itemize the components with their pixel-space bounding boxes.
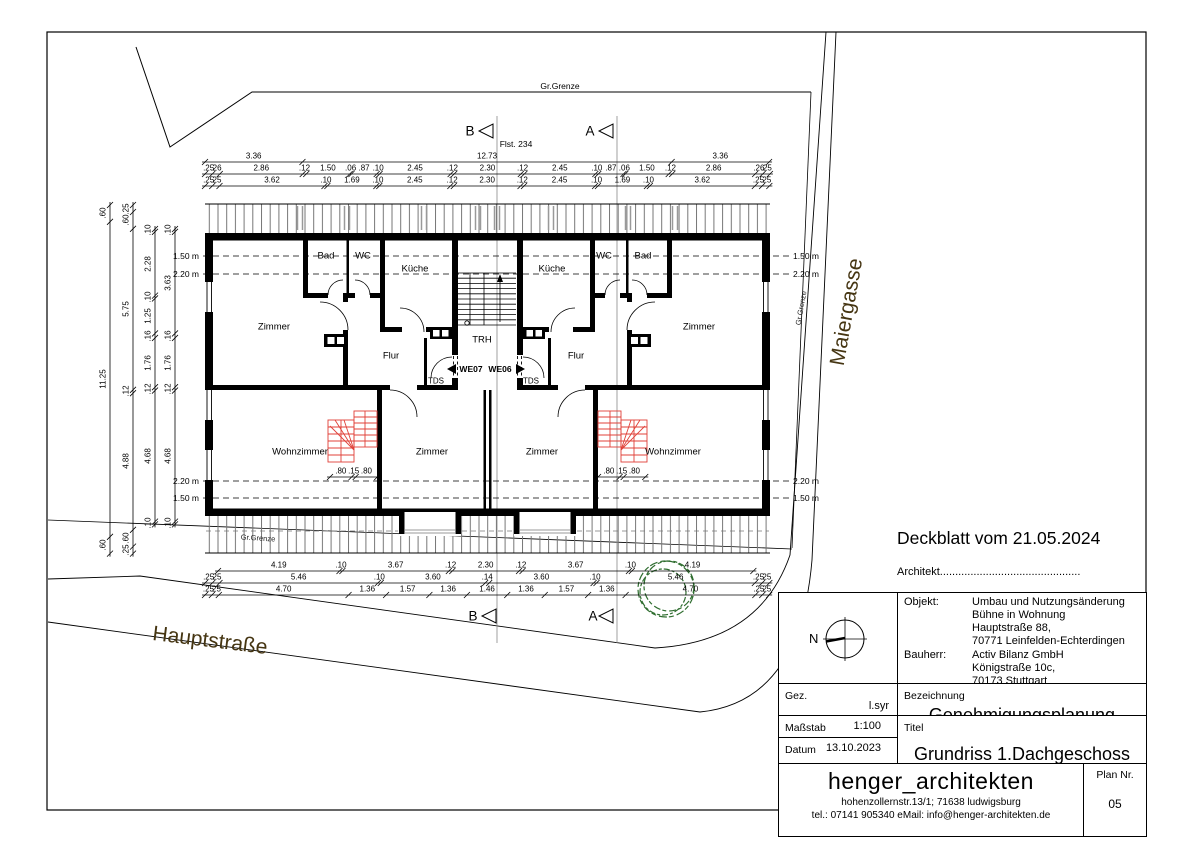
gez-label: Gez. xyxy=(785,690,807,702)
firm-contact: tel.: 07141 905340 eMail: info@henger-ar… xyxy=(779,810,1083,821)
massstab-value: 1:100 xyxy=(853,720,881,732)
title-block-compass-cell: N xyxy=(778,592,898,684)
firm-address: hohenzollernstr.13/1; 71638 ludwigsburg xyxy=(779,797,1083,808)
title-block-firm-cell: henger_architekten hohenzollernstr.13/1;… xyxy=(778,763,1084,837)
titel-value: Grundriss 1.Dachgeschoss xyxy=(904,744,1140,765)
title-block-plan-nr-cell: Plan Nr. 05 xyxy=(1083,763,1147,837)
north-compass-icon xyxy=(779,593,897,683)
title-block-massstab-cell: Maßstab 1:100 xyxy=(778,715,898,738)
architekt-line: Architekt...............................… xyxy=(897,566,1080,578)
firm-name: henger_architekten xyxy=(779,768,1083,795)
title-block-datum-cell: Datum 13.10.2023 xyxy=(778,737,898,764)
titel-label: Titel xyxy=(904,722,923,734)
datum-label: Datum xyxy=(785,744,816,756)
architectural-plan-page: BadWCKücheKücheWCBadZimmerZimmerFlurFlur… xyxy=(0,0,1191,842)
title-block-bezeichnung-cell: Bezeichnung Genehmigungsplanung xyxy=(897,683,1147,716)
title-block-gez-cell: Gez. l.syr xyxy=(778,683,898,716)
datum-value: 13.10.2023 xyxy=(826,742,881,754)
plan-nr-value: 05 xyxy=(1084,797,1146,811)
north-label: N xyxy=(809,631,818,646)
bezeichnung-label: Bezeichnung xyxy=(904,690,965,702)
objekt-value: Umbau und NutzungsänderungBühne in Wohnu… xyxy=(972,596,1125,648)
objekt-label: Objekt: xyxy=(904,596,972,648)
gez-value: l.syr xyxy=(869,700,889,712)
massstab-label: Maßstab xyxy=(785,722,826,734)
title-block-objekt-cell: Objekt: Umbau und NutzungsänderungBühne … xyxy=(897,592,1147,684)
title-block-titel-cell: Titel Grundriss 1.Dachgeschoss xyxy=(897,715,1147,764)
deckblatt-title: Deckblatt vom 21.05.2024 xyxy=(897,528,1100,549)
plan-nr-label: Plan Nr. xyxy=(1084,769,1146,781)
